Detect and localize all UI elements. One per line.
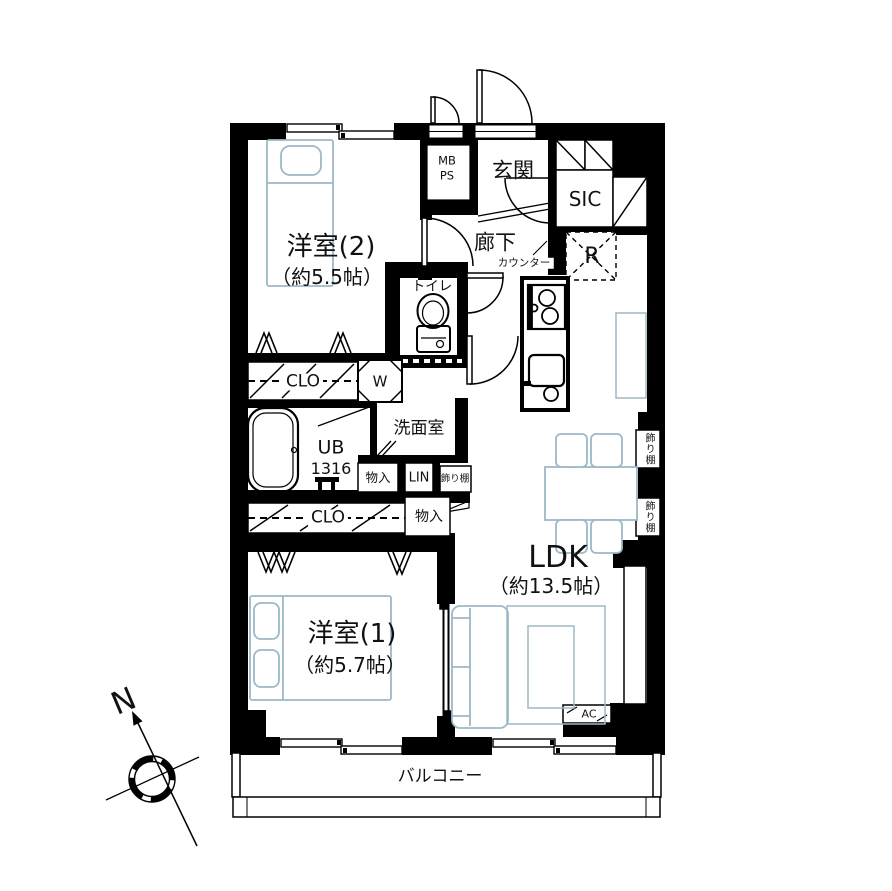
counter-label: カウンター — [495, 258, 554, 269]
storage-upper-label: 物入 — [365, 472, 390, 485]
sliding-partition — [440, 602, 452, 720]
room-size-ldk: （約13.5帖） — [489, 576, 614, 596]
room-label-sic: SIC — [569, 189, 602, 209]
entry-sills — [429, 125, 536, 138]
room-label-hallway: 廊下 — [474, 233, 516, 254]
shelf-right-lower-label: 飾り棚 — [643, 501, 653, 534]
bathroom-label: UB — [318, 439, 345, 458]
room-label-ldk: LDK — [528, 543, 588, 573]
sofa-icon — [452, 606, 508, 728]
meter-box-label-mb: MB — [438, 155, 456, 167]
meter-box-label-ps: PS — [440, 170, 454, 182]
shelf-inner-label: 飾り棚 — [441, 474, 470, 484]
room-label-entrance: 玄関 — [492, 161, 534, 182]
room-label-bedroom1: 洋室(1) — [308, 621, 397, 647]
counter-leader — [533, 241, 547, 255]
kitchen-cabinet — [616, 313, 646, 398]
balcony-label: バルコニー — [398, 769, 483, 786]
window-top — [286, 123, 394, 140]
tv-board — [624, 566, 646, 704]
room-label-toilet: トイレ — [412, 280, 453, 294]
bathtub-icon — [248, 408, 298, 500]
storage-lower-label: 物入 — [415, 510, 443, 524]
dining-set-icon — [545, 434, 637, 553]
room-label-washroom: 洗面室 — [394, 421, 445, 438]
window-bottom-left — [280, 737, 402, 755]
room-size-bedroom1: （約5.7帖） — [294, 655, 406, 675]
closet-lower-label: CLO — [308, 510, 348, 527]
room-label-bedroom2: 洋室(2) — [287, 234, 376, 260]
room-size-bedroom2: （約5.5帖） — [271, 267, 383, 287]
closet-upper-label: CLO — [283, 374, 323, 391]
window-bottom-right — [492, 737, 616, 755]
ac-label: AC — [581, 709, 596, 720]
floorplan-graphics — [0, 0, 892, 891]
shelf-right-upper-label: 飾り棚 — [643, 433, 653, 466]
bath-faucet-icon — [315, 477, 339, 491]
refrigerator-label: R — [584, 246, 599, 268]
toilet-icon — [417, 294, 450, 352]
linen-label: LIN — [409, 472, 430, 485]
kitchen — [521, 278, 568, 410]
floorplan-page: 洋室(2) （約5.5帖） 洋室(1) （約5.7帖） LDK （約13.5帖）… — [0, 0, 892, 891]
washer-label: W — [373, 375, 388, 390]
bathroom-size: 1316 — [311, 461, 352, 477]
compass-icon — [106, 711, 199, 846]
